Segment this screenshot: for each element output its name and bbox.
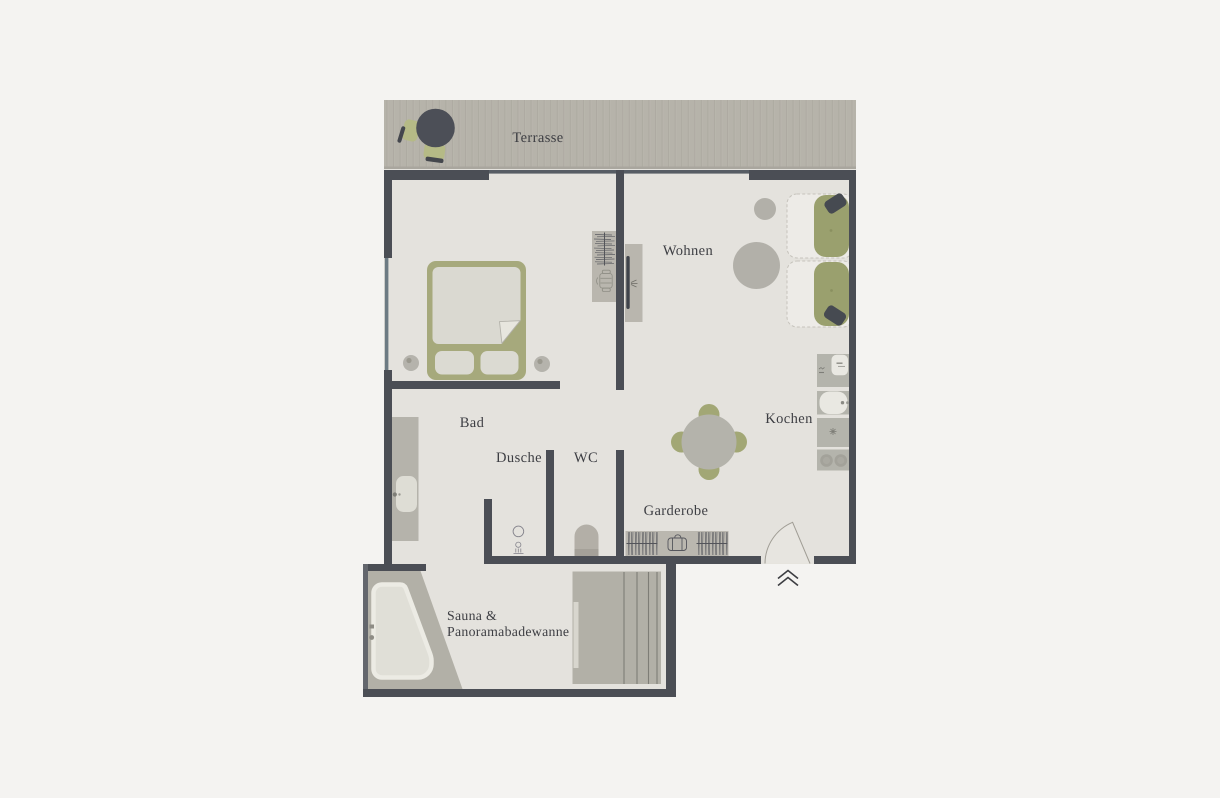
svg-text:Bad: Bad — [460, 415, 485, 431]
svg-text:Dusche: Dusche — [496, 450, 542, 466]
svg-text:Wohnen: Wohnen — [663, 243, 714, 259]
svg-text:Kochen: Kochen — [765, 411, 813, 427]
svg-text:Garderobe: Garderobe — [644, 503, 709, 519]
svg-text:WC: WC — [574, 450, 598, 466]
svg-text:Terrasse: Terrasse — [512, 130, 563, 146]
svg-text:Sauna &: Sauna & — [447, 608, 497, 623]
svg-text:Panoramabadewanne: Panoramabadewanne — [447, 624, 569, 639]
